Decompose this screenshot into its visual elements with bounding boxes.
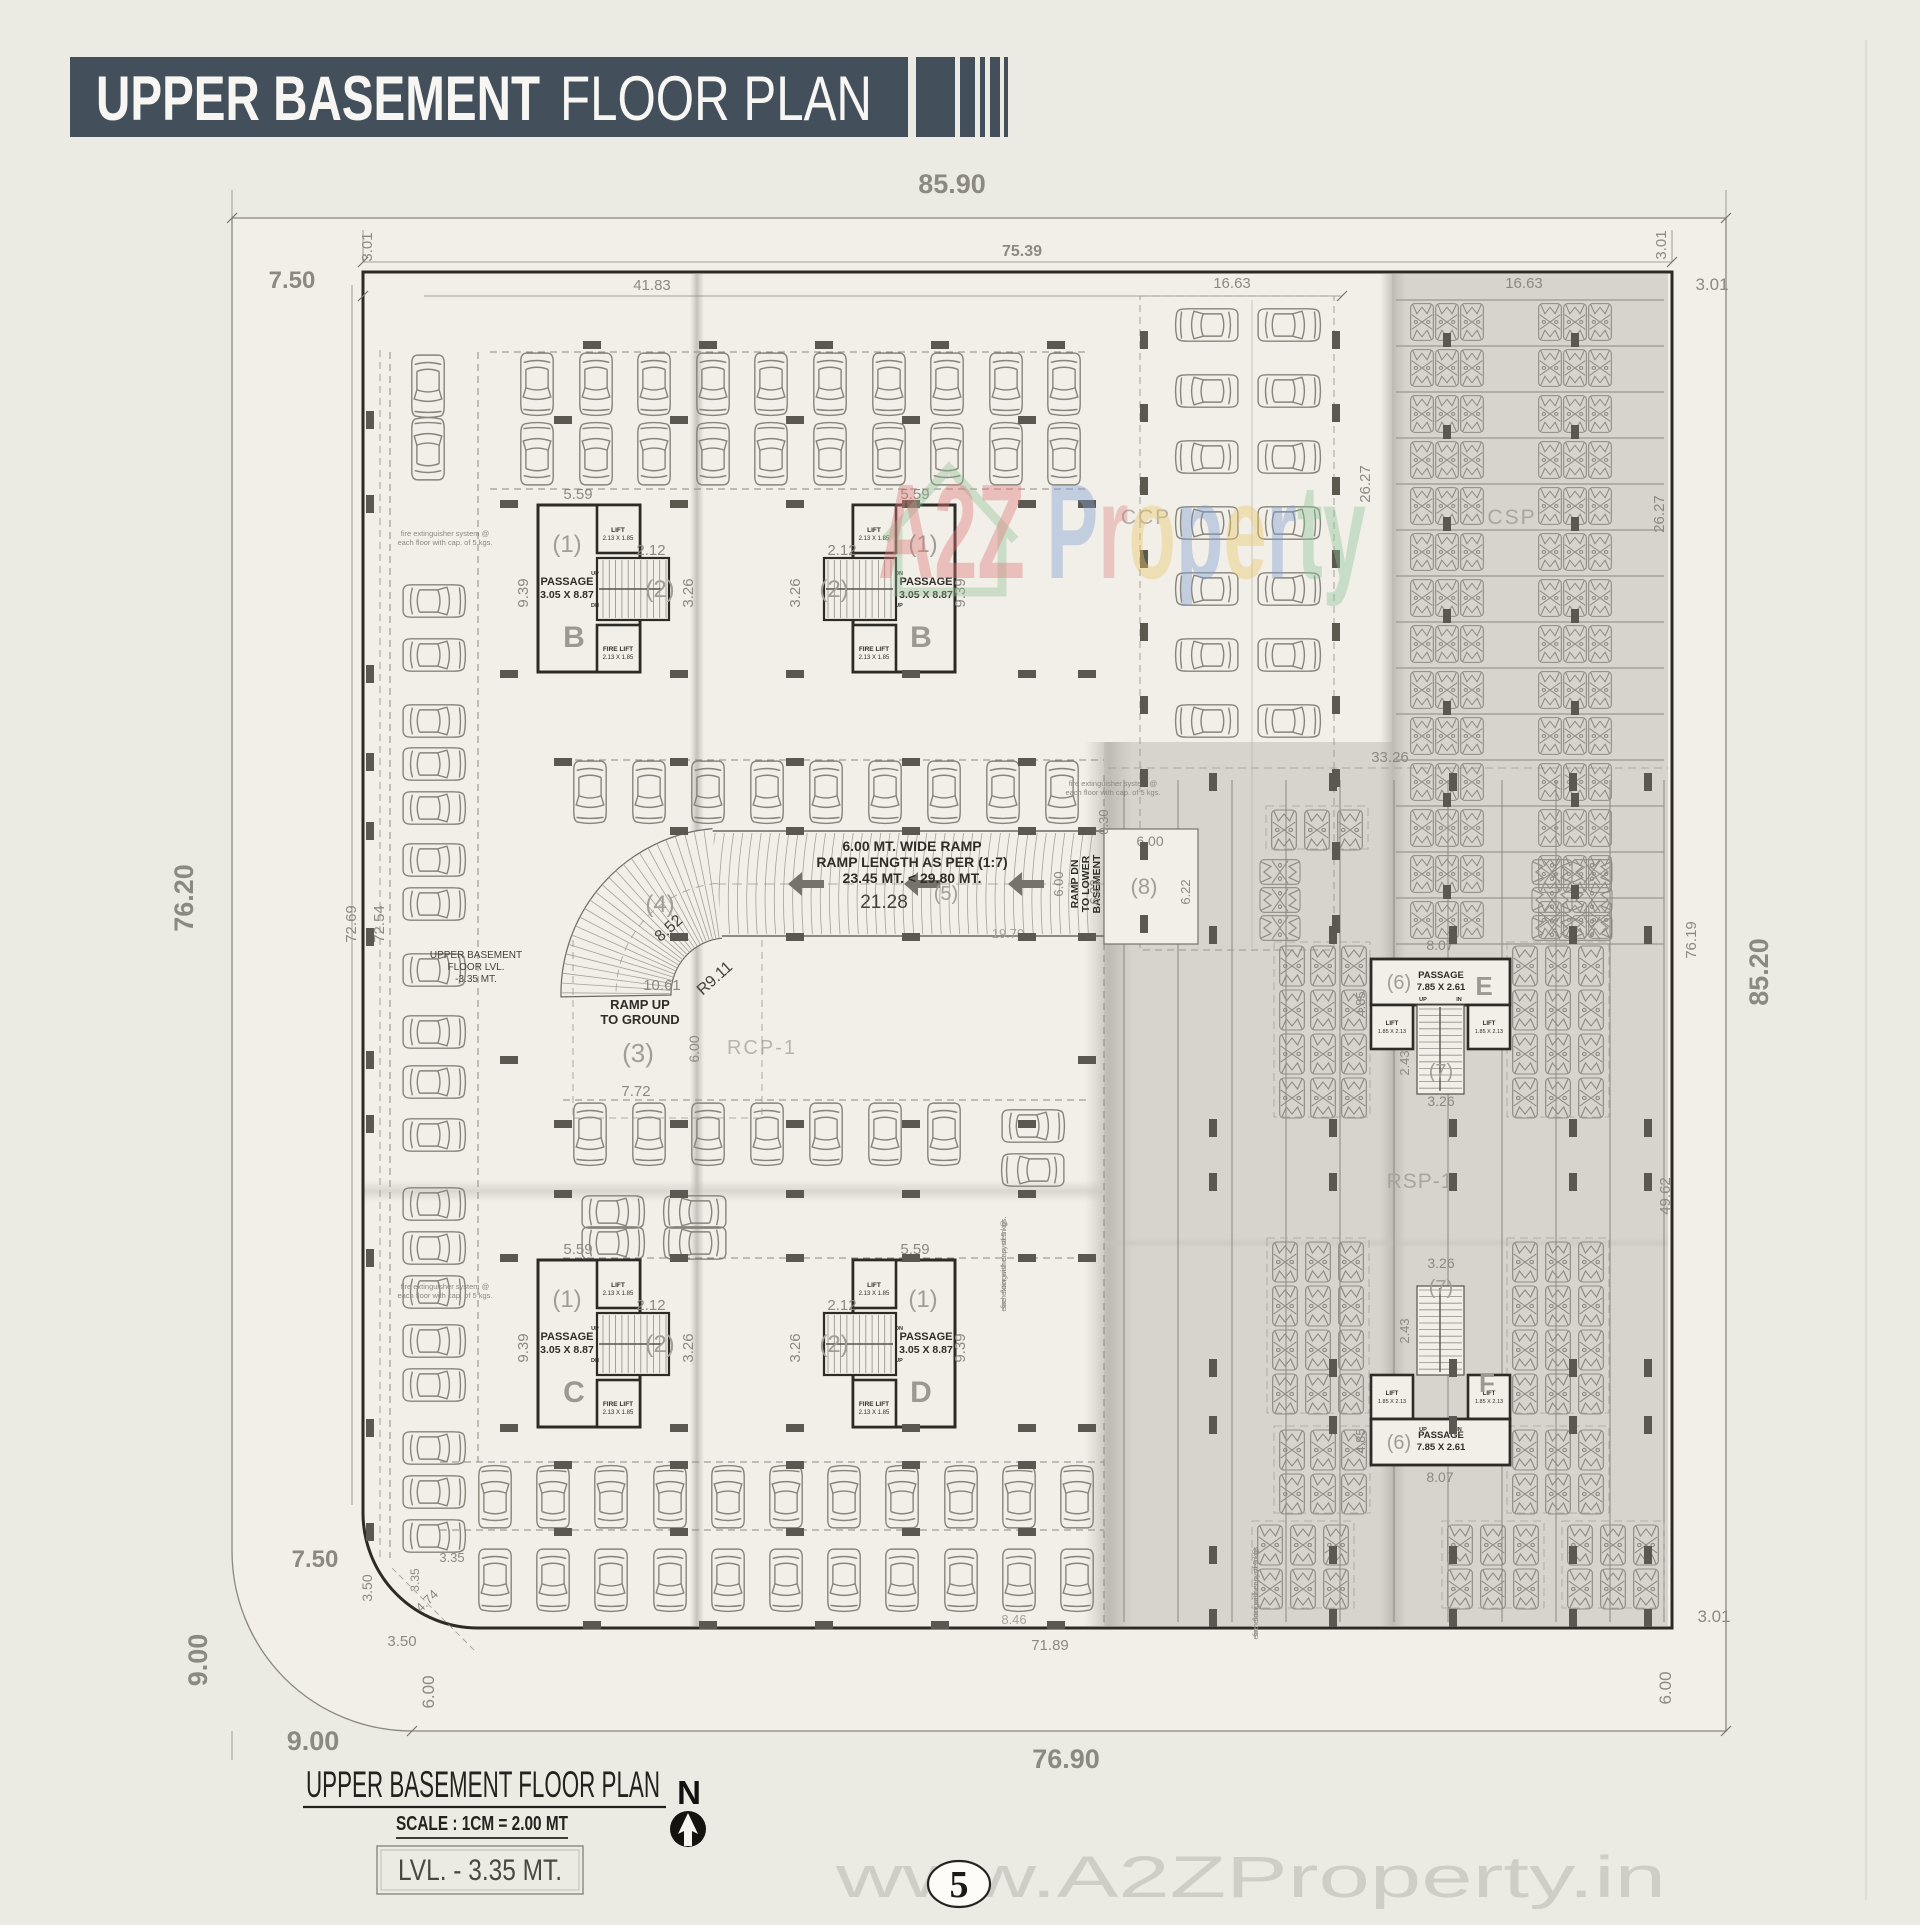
svg-text:3.35: 3.35 xyxy=(408,1568,422,1592)
svg-text:1.85 X 2.13: 1.85 X 2.13 xyxy=(1378,1399,1406,1405)
svg-text:2.13 X 1.85: 2.13 X 1.85 xyxy=(603,1291,634,1297)
svg-text:2.12: 2.12 xyxy=(636,1297,665,1314)
svg-text:PASSAGE: PASSAGE xyxy=(541,576,594,588)
svg-text:(1): (1) xyxy=(908,1286,937,1313)
svg-text:(2): (2) xyxy=(645,1331,674,1358)
svg-text:(7): (7) xyxy=(1429,1277,1453,1299)
svg-text:3.01: 3.01 xyxy=(1697,1607,1730,1626)
svg-text:9.39: 9.39 xyxy=(952,1333,969,1362)
svg-text:(6): (6) xyxy=(1387,1432,1411,1454)
svg-text:LIFT: LIFT xyxy=(1386,1021,1399,1027)
svg-text:FIRE LIFT: FIRE LIFT xyxy=(603,1401,633,1408)
svg-text:FIRE LIFT: FIRE LIFT xyxy=(859,646,889,653)
svg-text:3.01: 3.01 xyxy=(1653,230,1670,259)
svg-text:C: C xyxy=(563,1376,585,1409)
svg-text:fire extinguisher system @: fire extinguisher system @ xyxy=(401,529,489,538)
svg-text:UPPER BASEMENT FLOOR PLAN: UPPER BASEMENT FLOOR PLAN xyxy=(306,1764,660,1805)
svg-text:RSP-1: RSP-1 xyxy=(1387,1170,1454,1193)
svg-text:76.20: 76.20 xyxy=(169,864,199,932)
svg-text:TO GROUND: TO GROUND xyxy=(600,1012,679,1027)
svg-text:3.26: 3.26 xyxy=(787,1333,804,1362)
svg-text:FLOOR LVL.: FLOOR LVL. xyxy=(447,962,504,973)
svg-text:2.13 X 1.85: 2.13 X 1.85 xyxy=(603,536,634,542)
svg-text:4.85: 4.85 xyxy=(1353,991,1368,1016)
svg-text:E: E xyxy=(1475,971,1492,1001)
svg-text:9.39: 9.39 xyxy=(515,578,532,607)
svg-text:3.50: 3.50 xyxy=(387,1633,416,1650)
svg-text:2.13 X 1.85: 2.13 X 1.85 xyxy=(859,1291,890,1297)
svg-text:DN: DN xyxy=(591,603,599,609)
svg-text:6.00: 6.00 xyxy=(1656,1671,1675,1704)
svg-text:F: F xyxy=(1479,1368,1495,1398)
svg-text:75.39: 75.39 xyxy=(1002,243,1042,260)
svg-text:6.22: 6.22 xyxy=(1178,879,1193,904)
svg-text:each floor with cap. of 5 kgs.: each floor with cap. of 5 kgs. xyxy=(999,1216,1008,1311)
svg-text:B: B xyxy=(563,621,585,654)
svg-text:71.89: 71.89 xyxy=(1031,1637,1069,1654)
svg-text:UP: UP xyxy=(895,1358,903,1364)
svg-text:PASSAGE: PASSAGE xyxy=(541,1331,594,1343)
svg-text:6.00: 6.00 xyxy=(1051,871,1066,896)
svg-text:16.63: 16.63 xyxy=(1213,275,1251,292)
svg-text:(4): (4) xyxy=(645,891,674,918)
svg-text:9.39: 9.39 xyxy=(515,1333,532,1362)
svg-text:DN: DN xyxy=(895,1326,903,1332)
svg-text:76.19: 76.19 xyxy=(1683,921,1700,959)
svg-text:LIFT: LIFT xyxy=(867,1282,881,1289)
svg-text:33.26: 33.26 xyxy=(1371,749,1409,766)
svg-text:(2): (2) xyxy=(645,576,674,603)
svg-text:UP: UP xyxy=(591,571,599,577)
svg-text:72.69: 72.69 xyxy=(343,905,360,943)
svg-text:LIFT: LIFT xyxy=(1483,1021,1496,1027)
svg-text:LVL. - 3.35 MT.: LVL. - 3.35 MT. xyxy=(398,1854,562,1887)
svg-text:3.05 X 8.87: 3.05 X 8.87 xyxy=(540,1344,594,1356)
svg-text:RAMP UP: RAMP UP xyxy=(610,997,670,1012)
svg-text:7.50: 7.50 xyxy=(292,1546,339,1573)
svg-text:(2): (2) xyxy=(819,576,848,603)
svg-text:16.63: 16.63 xyxy=(1505,275,1543,292)
svg-text:2.13 X 1.85: 2.13 X 1.85 xyxy=(859,655,890,661)
svg-text:A2Z Property: A2Z Property xyxy=(878,456,1366,607)
svg-text:PASSAGE: PASSAGE xyxy=(900,1331,953,1343)
svg-text:DN: DN xyxy=(591,1358,599,1364)
svg-text:2.13 X 1.85: 2.13 X 1.85 xyxy=(603,1410,634,1416)
svg-text:LIFT: LIFT xyxy=(1386,1391,1399,1397)
svg-text:2.43: 2.43 xyxy=(1397,1050,1412,1075)
svg-text:2.12: 2.12 xyxy=(827,1297,856,1314)
svg-text:B: B xyxy=(910,621,932,654)
svg-text:3.50: 3.50 xyxy=(359,1574,375,1601)
svg-text:85.20: 85.20 xyxy=(1744,938,1774,1006)
svg-text:2.12: 2.12 xyxy=(827,542,856,559)
svg-text:3.01: 3.01 xyxy=(1695,275,1728,294)
svg-text:LIFT: LIFT xyxy=(611,527,625,534)
svg-text:UPPER BASEMENT: UPPER BASEMENT xyxy=(96,64,540,134)
svg-text:2.43: 2.43 xyxy=(1397,1318,1412,1343)
svg-text:PASSAGE: PASSAGE xyxy=(1418,1430,1464,1441)
svg-text:8.07: 8.07 xyxy=(1426,1469,1453,1485)
svg-text:each floor with cap. of 5 kgs.: each floor with cap. of 5 kgs. xyxy=(1251,1544,1260,1639)
svg-text:2.13 X 1.85: 2.13 X 1.85 xyxy=(603,655,634,661)
svg-text:4.85: 4.85 xyxy=(1353,1428,1368,1453)
svg-text:(6): (6) xyxy=(1387,972,1411,994)
svg-text:5.59: 5.59 xyxy=(563,486,592,503)
svg-text:IN: IN xyxy=(1456,997,1462,1003)
svg-text:41.83: 41.83 xyxy=(633,277,671,294)
svg-text:each floor with cap. of 5 kgs.: each floor with cap. of 5 kgs. xyxy=(397,1291,492,1300)
svg-text:5.59: 5.59 xyxy=(563,1241,592,1258)
svg-text:PASSAGE: PASSAGE xyxy=(1418,970,1464,981)
svg-text:(1): (1) xyxy=(552,1286,581,1313)
svg-text:2.12: 2.12 xyxy=(636,542,665,559)
svg-text:RAMP LENGTH AS PER (1:7): RAMP LENGTH AS PER (1:7) xyxy=(816,854,1007,870)
svg-text:FLOOR PLAN: FLOOR PLAN xyxy=(560,64,872,134)
svg-text:(5): (5) xyxy=(934,883,958,905)
svg-text:3.05 X 8.87: 3.05 X 8.87 xyxy=(540,589,594,601)
svg-text:3.26: 3.26 xyxy=(1427,1093,1454,1109)
svg-text:(1): (1) xyxy=(552,531,581,558)
svg-text:(7): (7) xyxy=(1429,1061,1453,1083)
svg-text:49.62: 49.62 xyxy=(1657,1177,1674,1215)
svg-text:FIRE LIFT: FIRE LIFT xyxy=(859,1401,889,1408)
svg-text:6.00: 6.00 xyxy=(419,1675,438,1708)
svg-text:1.85 X 2.13: 1.85 X 2.13 xyxy=(1378,1029,1406,1035)
svg-text:26.27: 26.27 xyxy=(1651,495,1668,533)
svg-text:2.13 X 1.85: 2.13 X 1.85 xyxy=(859,1410,890,1416)
svg-text:D: D xyxy=(910,1376,932,1409)
svg-text:(8): (8) xyxy=(1131,874,1158,899)
svg-text:21.28: 21.28 xyxy=(860,892,908,913)
svg-text:0.30: 0.30 xyxy=(1096,809,1111,834)
svg-text:each floor with cap. of 5 kgs.: each floor with cap. of 5 kgs. xyxy=(397,538,492,547)
svg-text:1.85 X 2.13: 1.85 X 2.13 xyxy=(1475,1399,1503,1405)
svg-text:3.26: 3.26 xyxy=(1427,1255,1454,1271)
svg-text:UP: UP xyxy=(1419,997,1427,1003)
svg-text:7.85 X 2.61: 7.85 X 2.61 xyxy=(1417,982,1466,993)
svg-text:5: 5 xyxy=(950,1864,969,1906)
svg-text:UP: UP xyxy=(591,1326,599,1332)
svg-text:9.00: 9.00 xyxy=(287,1726,340,1756)
svg-text:(3): (3) xyxy=(622,1038,654,1068)
svg-text:N: N xyxy=(677,1774,701,1811)
svg-text:UPPER BASEMENT: UPPER BASEMENT xyxy=(430,950,522,961)
svg-text:3.26: 3.26 xyxy=(787,578,804,607)
svg-text:each floor with cap. of 5 kgs.: each floor with cap. of 5 kgs. xyxy=(1065,788,1160,797)
svg-text:7.72: 7.72 xyxy=(621,1083,650,1100)
svg-text:SCALE : 1CM = 2.00 MT: SCALE : 1CM = 2.00 MT xyxy=(396,1813,568,1835)
svg-text:3.26: 3.26 xyxy=(680,578,697,607)
svg-text:8.46: 8.46 xyxy=(1001,1612,1026,1627)
svg-text:85.90: 85.90 xyxy=(918,169,986,199)
svg-text:fire extinguisher system @: fire extinguisher system @ xyxy=(401,1282,489,1291)
svg-text:3.26: 3.26 xyxy=(680,1333,697,1362)
svg-text:1.85 X 2.13: 1.85 X 2.13 xyxy=(1475,1029,1503,1035)
svg-text:7.50: 7.50 xyxy=(269,267,316,294)
svg-text:FIRE LIFT: FIRE LIFT xyxy=(603,646,633,653)
svg-text:23.45 MT. < 29.80 MT.: 23.45 MT. < 29.80 MT. xyxy=(843,870,982,886)
svg-text:10.61: 10.61 xyxy=(643,977,681,994)
svg-text:6.00 MT. WIDE RAMP: 6.00 MT. WIDE RAMP xyxy=(842,838,981,854)
svg-text:LIFT: LIFT xyxy=(611,1282,625,1289)
svg-text:6.00: 6.00 xyxy=(686,1035,702,1062)
svg-text:(2): (2) xyxy=(819,1331,848,1358)
svg-text:7.85 X 2.61: 7.85 X 2.61 xyxy=(1417,1442,1466,1453)
svg-text:9.00: 9.00 xyxy=(183,1634,213,1687)
svg-text:76.90: 76.90 xyxy=(1032,1744,1100,1774)
svg-text:6.22: 6.22 xyxy=(1087,879,1102,904)
svg-text:3.05 X 8.87: 3.05 X 8.87 xyxy=(899,1344,953,1356)
svg-text:CSP: CSP xyxy=(1487,506,1536,529)
svg-text:-3.35 MT.: -3.35 MT. xyxy=(455,974,497,985)
